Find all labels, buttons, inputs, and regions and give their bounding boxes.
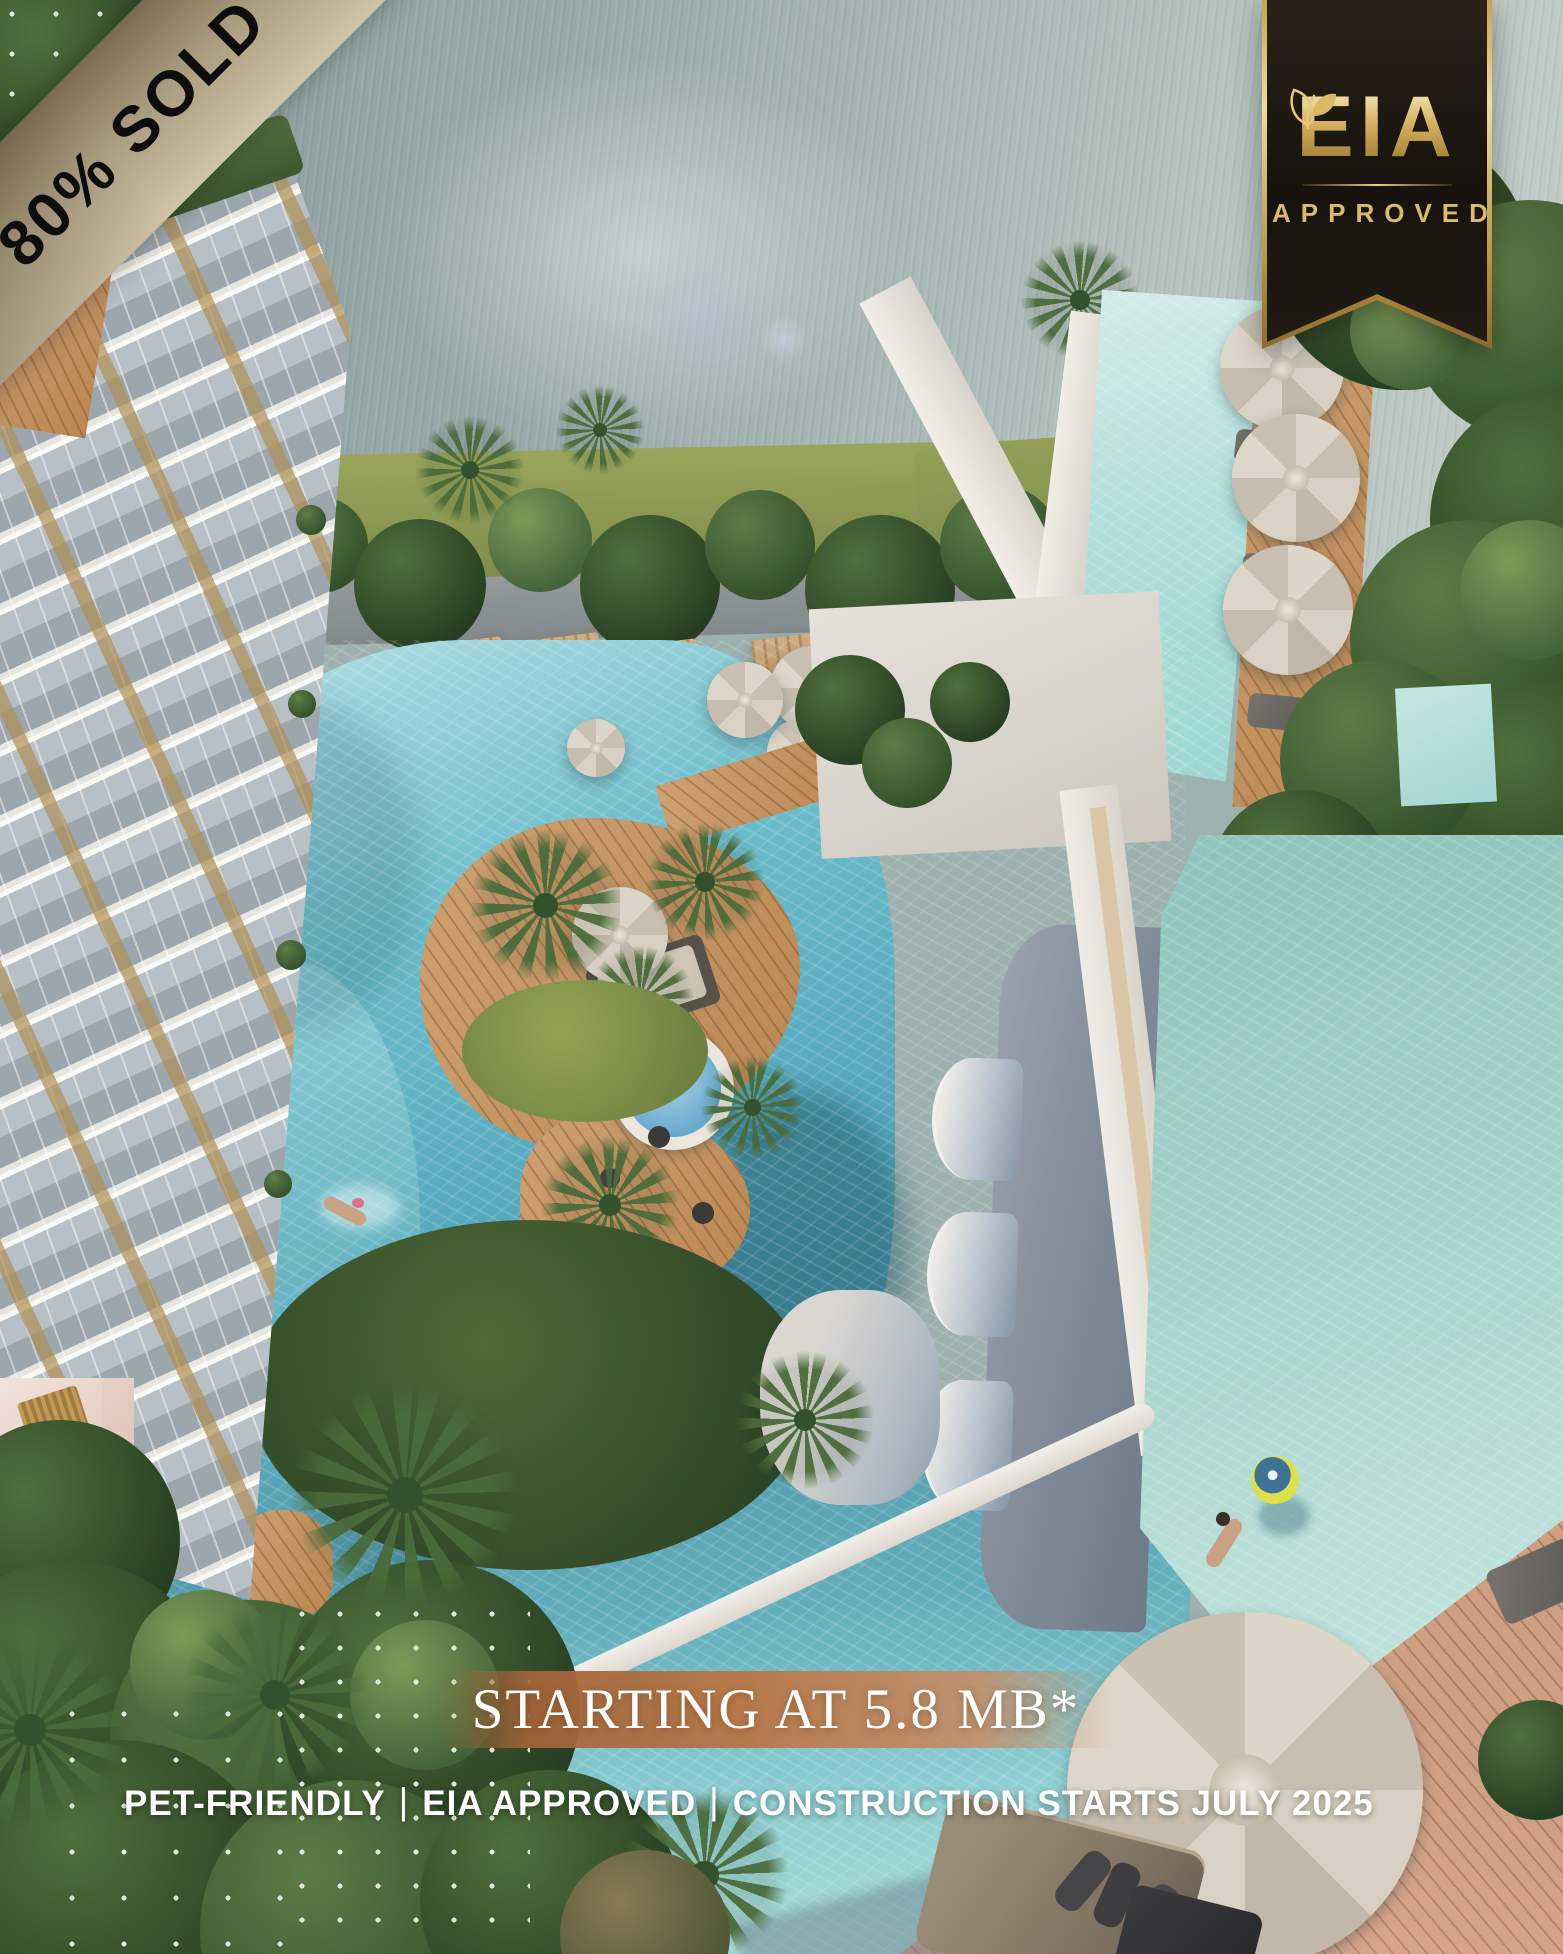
cafe-table xyxy=(648,1126,670,1148)
balcony-plant xyxy=(288,690,316,718)
palm-tree xyxy=(735,1350,875,1490)
balcony-plant xyxy=(296,505,326,535)
palm-tree xyxy=(290,1380,520,1610)
balcony-plant xyxy=(264,1170,292,1198)
roof-garden xyxy=(930,662,1010,742)
swimmer-hair xyxy=(1216,1512,1230,1526)
palm-tree xyxy=(555,385,645,475)
palm-tree xyxy=(700,1055,805,1160)
badge-divider xyxy=(1302,184,1452,186)
leaf-icon xyxy=(1284,84,1338,136)
balcony xyxy=(925,1210,1019,1337)
feature-eia-approved: EIA APPROVED xyxy=(422,1784,696,1824)
tree xyxy=(705,490,815,600)
price-banner-text: STARTING AT 5.8 MB* xyxy=(472,1677,1081,1742)
lens-flare xyxy=(760,315,808,363)
umbrella xyxy=(1232,414,1360,542)
palm-tree xyxy=(468,828,623,983)
sun-glare xyxy=(360,40,920,460)
lens-flare xyxy=(640,255,770,385)
separator: | xyxy=(386,1781,423,1823)
eia-approved-badge: EIA APPROVED xyxy=(1262,0,1492,349)
palm-tree xyxy=(180,1600,370,1790)
balcony-plant xyxy=(276,940,306,970)
palm-tree xyxy=(645,822,765,942)
palm-tree xyxy=(415,415,525,525)
badge-status: APPROVED xyxy=(1262,198,1492,229)
resort-poster: 80% SOLD EIA APPROVED STARTING AT 5.8 MB… xyxy=(0,0,1563,1954)
umbrella xyxy=(1223,545,1353,675)
pool-float xyxy=(1251,1456,1299,1504)
tree xyxy=(580,515,720,655)
swimsuit xyxy=(352,1198,364,1208)
feature-construction-start: CONSTRUCTION STARTS JULY 2025 xyxy=(733,1784,1374,1824)
cafe-table xyxy=(692,1202,714,1224)
tree xyxy=(354,519,486,651)
roof-garden xyxy=(862,718,952,808)
separator: | xyxy=(696,1781,733,1823)
feature-strip: PET-FRIENDLY | EIA APPROVED | CONSTRUCTI… xyxy=(124,1782,1374,1824)
plunge-pool xyxy=(1395,684,1497,807)
feature-pet-friendly: PET-FRIENDLY xyxy=(124,1784,386,1824)
lawn-mound xyxy=(462,980,708,1122)
umbrella xyxy=(707,662,783,738)
umbrella xyxy=(567,719,625,777)
balcony xyxy=(930,1056,1024,1181)
price-banner: STARTING AT 5.8 MB* xyxy=(438,1671,1114,1748)
